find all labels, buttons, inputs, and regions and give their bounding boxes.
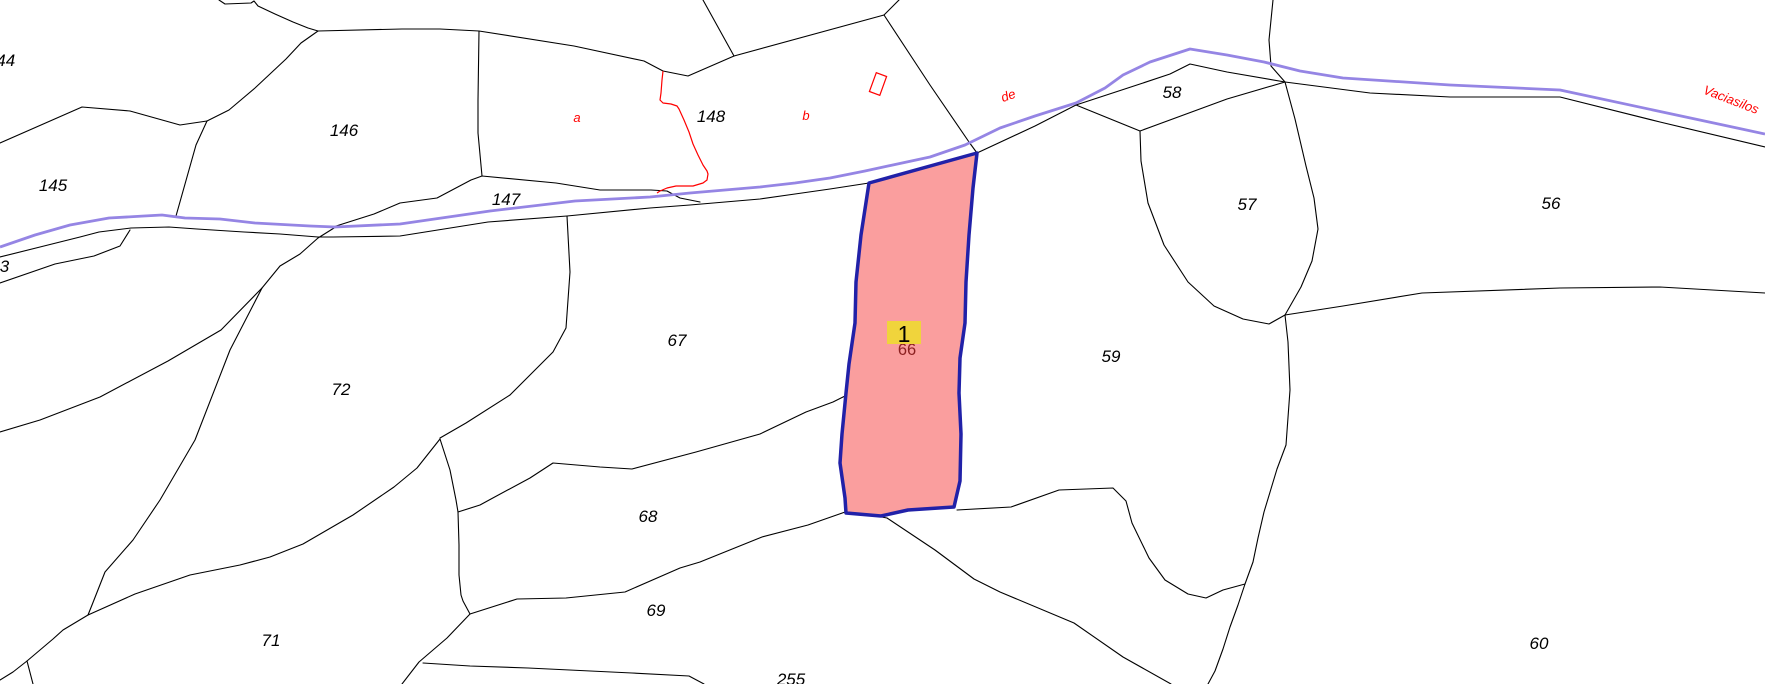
svg-text:b: b bbox=[802, 108, 809, 123]
svg-text:57: 57 bbox=[1238, 195, 1257, 214]
svg-text:a: a bbox=[573, 110, 580, 125]
svg-text:146: 146 bbox=[330, 121, 359, 140]
svg-text:71: 71 bbox=[262, 631, 281, 650]
svg-text:60: 60 bbox=[1530, 634, 1549, 653]
svg-text:69: 69 bbox=[647, 601, 666, 620]
svg-text:67: 67 bbox=[668, 331, 687, 350]
svg-text:58: 58 bbox=[1163, 83, 1182, 102]
svg-text:148: 148 bbox=[697, 107, 726, 126]
svg-text:143: 143 bbox=[0, 257, 10, 276]
svg-text:1: 1 bbox=[898, 321, 911, 347]
svg-text:144: 144 bbox=[0, 51, 15, 70]
svg-text:56: 56 bbox=[1542, 194, 1561, 213]
svg-text:255: 255 bbox=[776, 670, 806, 684]
svg-text:145: 145 bbox=[39, 176, 68, 195]
svg-text:59: 59 bbox=[1102, 347, 1121, 366]
svg-text:72: 72 bbox=[332, 380, 351, 399]
svg-text:68: 68 bbox=[639, 507, 658, 526]
svg-text:147: 147 bbox=[492, 190, 521, 209]
